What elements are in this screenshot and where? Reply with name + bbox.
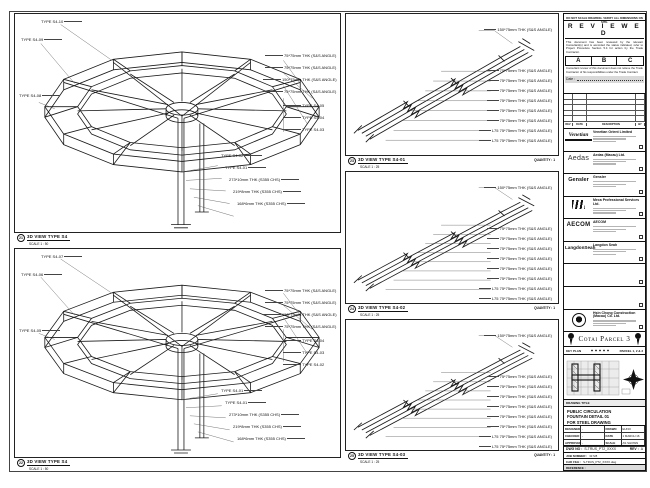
job-label: JOB NUMBER : (566, 454, 587, 458)
company-address-lines (593, 208, 643, 214)
rev-value: A (641, 447, 643, 451)
view-title: 3D VIEW TYPE S4 (27, 234, 70, 241)
company-address-lines (593, 159, 643, 165)
reference-row: REFERENCE : (563, 465, 646, 471)
view-title: 3D VIEW TYPE S4-01 (358, 157, 408, 164)
view-frame: 150*75mm THK (S&S ANGLE)75*75mm THK (S&S… (345, 319, 559, 451)
field-value: - (581, 433, 604, 439)
grade-a: A (566, 57, 592, 65)
review-checkbox (639, 190, 643, 194)
north-compass-icon (623, 369, 644, 390)
grade-b: B (592, 57, 618, 65)
field-value: 1 MARCH 16 (622, 433, 645, 439)
review-checkbox (639, 280, 643, 284)
rev-label: REV : (630, 447, 639, 451)
review-checkbox (639, 212, 643, 216)
truss-wireframe-drawing (346, 14, 558, 155)
company-row: LangdonSeah Langdon Seah (563, 241, 646, 265)
title-block-strip: DO NOT SCALE DRAWING. VERIFY ALL DIMENSI… (563, 13, 646, 471)
company-address-lines (593, 136, 643, 142)
panel-3d-view-s4-bottom: TYPE S4-07TYPE S4-06TYPE S4-0575*75mm TH… (14, 248, 341, 471)
panel-3d-view-s4-top: TYPE S4-10TYPE S4-09TYPE S4-0875*75mm TH… (14, 13, 341, 246)
company-name: AECOM (593, 221, 643, 225)
company-name: Aedas (Macau) Ltd. (593, 154, 643, 158)
company-logo (565, 313, 592, 329)
reviewed-paragraph-1: This document has been reviewed by the r… (566, 41, 643, 55)
company-address-lines (593, 226, 643, 232)
date-col: DATE (573, 123, 587, 126)
company-logo: Aedas (565, 155, 592, 162)
view-title: 3D VIEW TYPE S4-02 (358, 305, 408, 312)
company-logo (565, 200, 592, 211)
reference-label: REFERENCE : (566, 466, 586, 470)
view-frame: TYPE S4-07TYPE S4-06TYPE S4-0575*75mm TH… (14, 248, 341, 458)
key-plan: KEY PLAN PARCEL 1, 2 & 3 (563, 346, 646, 400)
key-plan-header: KEY PLAN PARCEL 1, 2 & 3 (564, 347, 645, 355)
ornament-icon (567, 333, 575, 346)
company-row: Venetian Venetian Orient Limited (563, 128, 646, 152)
company-name: Venetian Orient Limited (593, 131, 643, 135)
review-checkbox (639, 235, 643, 239)
reviewed-title: R E V I E W E D (565, 22, 644, 39)
reviewed-paragraph-2: Consultant review of this document does … (566, 67, 643, 74)
drawing-sheet: TYPE S4-10TYPE S4-09TYPE S4-0875*75mm TH… (0, 0, 650, 488)
truss-wireframe-drawing (346, 172, 558, 303)
company-row: Meca Professional Services Ltd. (563, 196, 646, 220)
key-plan-label: KEY PLAN (566, 349, 581, 353)
view-quantity: QUANTITY : 1 (534, 306, 555, 310)
review-checkbox (639, 167, 643, 171)
company-row: AECOM AECOM (563, 218, 646, 242)
company-row: Hsin Chong Construction (Macau) Co. Ltd. (563, 309, 646, 333)
view-scale: SCALE 1 : 25 (360, 313, 379, 317)
view-frame: 150*75mm THK (S&S ANGLE)75*75mm THK (S&S… (345, 171, 559, 304)
field-label: DATE (605, 433, 622, 439)
view-scale: SCALE 1 : 25 (360, 460, 379, 464)
job-value: 31728 (589, 454, 597, 458)
date-label: Date : (566, 77, 575, 81)
company-logo: LangdonSeah (565, 245, 592, 250)
field-cell: DATE 1 MARCH 16 (605, 433, 646, 440)
review-checkbox (639, 257, 643, 261)
view-scale: SCALE 1 : 50 (29, 467, 48, 471)
canopy-wireframe-drawing (15, 249, 340, 457)
view-quantity: QUANTITY : 1 (534, 158, 555, 162)
field-cell: DESIGNED - (564, 426, 605, 433)
panel-3d-view-s4-02: 150*75mm THK (S&S ANGLE)75*75mm THK (S&S… (345, 171, 559, 317)
company-name: Langdon Seah (593, 244, 643, 248)
company-name: Meca Professional Services Ltd. (593, 199, 643, 207)
company-address-lines (593, 249, 643, 255)
drawing-title-label: DRAWING TITLE (564, 400, 645, 407)
field-label: CHECKED (564, 433, 581, 439)
view-frame: 150*75mm THK (S&S ANGLE)75*75mm THK (S&S… (345, 13, 559, 156)
view-title: 3D VIEW TYPE S4 (27, 459, 70, 466)
cad-label: CAD FILE : (566, 460, 581, 464)
detail-bubble: 25 (348, 452, 356, 460)
review-checkbox (639, 303, 643, 307)
by-col: BY (636, 123, 645, 126)
view-scale: SCALE 1 : 50 (29, 242, 48, 246)
ornament-icon (634, 333, 642, 346)
view-caption: 25 3D VIEW TYPE S4-03 SCALE 1 : 25 QUANT… (348, 451, 559, 464)
dwg-no-value: S-TRUS_PT2_XXXX (584, 447, 616, 451)
company-logo: Venetian (565, 132, 592, 141)
company-address-lines (593, 181, 643, 187)
field-value: - (581, 426, 604, 432)
review-checkbox (639, 145, 643, 149)
panel-3d-view-s4-03: 150*75mm THK (S&S ANGLE)75*75mm THK (S&S… (345, 319, 559, 464)
canopy-wireframe-drawing (15, 14, 340, 232)
view-caption: 22 3D VIEW TYPE S4 SCALE 1 : 50 (17, 458, 341, 471)
revision-table: REV DATE DESCRIPTION BY (563, 93, 646, 129)
scale-bar-icon (590, 349, 610, 352)
title-block-fields: DESIGNED - DRAWN EUNO CHECKED - DATE 1 M… (563, 425, 646, 446)
view-caption: 23 3D VIEW TYPE S4-01 SCALE 1 : 25 QUANT… (348, 156, 559, 169)
company-row: Aedas Aedas (Macau) Ltd. (563, 151, 646, 175)
view-quantity: QUANTITY : 1 (534, 453, 555, 457)
dwg-number-row: DWG NO : S-TRUS_PT2_XXXX REV : A (563, 445, 646, 453)
parcel-label: PARCEL 1, 2 & 3 (620, 349, 643, 353)
date-fill-line (577, 78, 643, 81)
field-cell: DRAWN EUNO (605, 426, 646, 433)
dwg-no-label: DWG NO : (566, 447, 582, 451)
company-row (563, 263, 646, 287)
company-address-lines (593, 320, 643, 326)
company-row: Gensler Gensler (563, 173, 646, 197)
truss-wireframe-drawing (346, 320, 558, 450)
company-row (563, 286, 646, 310)
drawing-title-box: DRAWING TITLE PUBLIC CIRCULATION FOUNTAI… (563, 399, 646, 426)
company-name: Hsin Chong Construction (Macau) Co. Ltd. (593, 312, 643, 320)
panel-3d-view-s4-01: 150*75mm THK (S&S ANGLE)75*75mm THK (S&S… (345, 13, 559, 169)
field-label: DESIGNED (564, 426, 581, 432)
company-logo: Gensler (565, 177, 592, 183)
site-plan-drawing (564, 355, 645, 399)
field-label: DRAWN (605, 426, 622, 432)
description-col: DESCRIPTION (587, 123, 636, 126)
consultant-list: Venetian Venetian Orient Limited Aedas A… (563, 129, 646, 332)
cad-value: S-TRUS_PT2_XXXX.dwg (583, 460, 616, 464)
rev-col: REV (564, 123, 573, 126)
field-value: EUNO (622, 426, 645, 432)
detail-bubble: 23 (348, 157, 356, 165)
field-cell: CHECKED - (564, 433, 605, 440)
company-logo: AECOM (565, 222, 592, 228)
view-scale: SCALE 1 : 25 (360, 165, 379, 169)
review-checkbox (639, 325, 643, 329)
view-title: 3D VIEW TYPE S4-03 (358, 452, 408, 459)
project-banner: Cotai Parcel 3 (563, 331, 646, 347)
review-date-row: Date : (565, 76, 644, 83)
reviewed-stamp: R E V I E W E D This document has been r… (563, 20, 646, 94)
view-frame: TYPE S4-10TYPE S4-09TYPE S4-0875*75mm TH… (14, 13, 341, 233)
detail-bubble: 24 (348, 305, 356, 313)
detail-bubble: 22 (17, 459, 25, 467)
project-name: Cotai Parcel 3 (579, 335, 631, 343)
company-name: Gensler (593, 176, 643, 180)
detail-bubble: 21 (17, 234, 25, 242)
review-grade-boxes: A B C (565, 56, 644, 66)
grade-c: C (617, 57, 643, 65)
view-caption: 21 3D VIEW TYPE S4 SCALE 1 : 50 (17, 233, 341, 246)
view-caption: 24 3D VIEW TYPE S4-02 SCALE 1 : 25 QUANT… (348, 304, 559, 317)
